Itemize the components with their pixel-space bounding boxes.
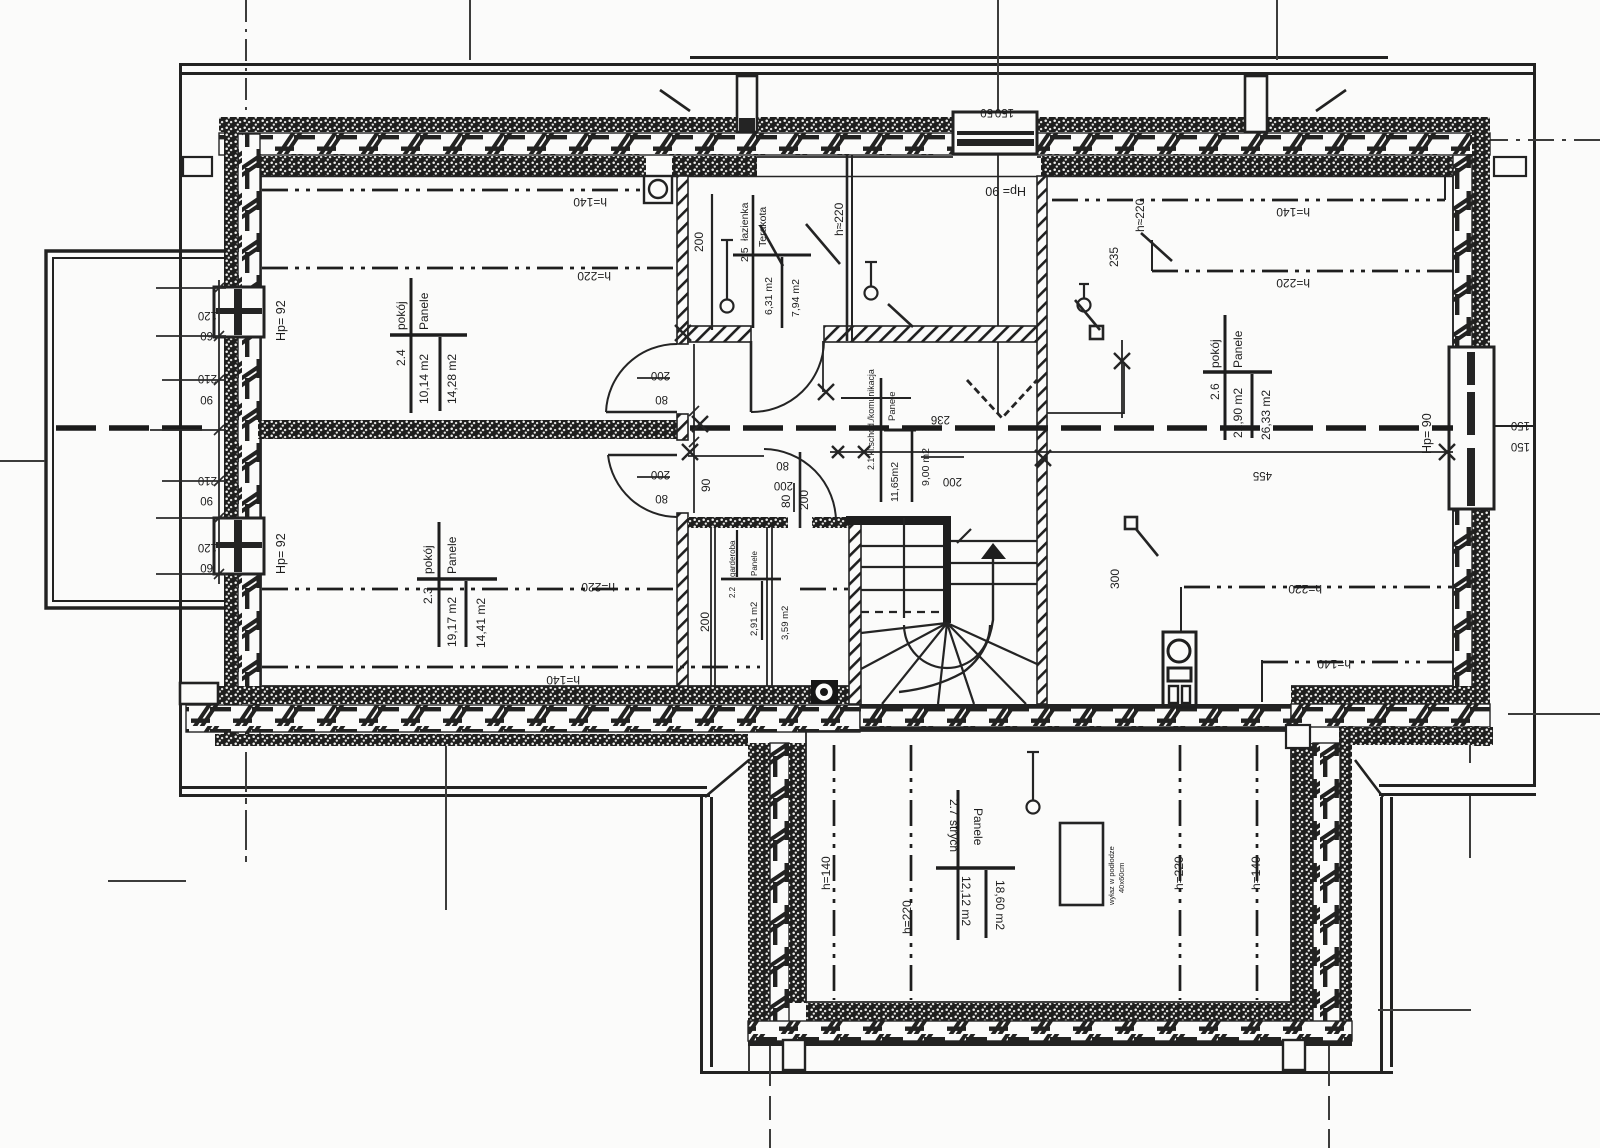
svg-text:Terakota: Terakota <box>757 207 769 247</box>
svg-text:Hp= 92: Hp= 92 <box>274 533 288 574</box>
svg-text:6,31 m2: 6,31 m2 <box>763 277 775 315</box>
svg-text:2.1 kl.schod./komunikacja: 2.1 kl.schod./komunikacja <box>866 369 876 470</box>
svg-text:200: 200 <box>651 369 670 381</box>
svg-text:h=140: h=140 <box>1276 205 1310 219</box>
svg-text:7,94 m2: 7,94 m2 <box>790 279 802 317</box>
svg-text:12,12 m2: 12,12 m2 <box>959 876 973 926</box>
svg-text:120: 120 <box>198 541 217 553</box>
svg-text:strych: strych <box>947 820 961 852</box>
svg-text:50: 50 <box>980 106 993 118</box>
svg-text:2.4: 2.4 <box>394 349 408 366</box>
svg-text:h=140: h=140 <box>573 195 607 209</box>
svg-text:pokój: pokój <box>394 301 408 330</box>
svg-text:300: 300 <box>1108 569 1122 589</box>
svg-text:h=220: h=220 <box>1288 582 1322 596</box>
svg-text:Hp= 92: Hp= 92 <box>274 300 288 341</box>
svg-text:150: 150 <box>1511 440 1530 452</box>
svg-text:60: 60 <box>200 329 213 341</box>
svg-text:80: 80 <box>655 492 668 504</box>
svg-text:pokój: pokój <box>1208 339 1222 368</box>
svg-text:Panele: Panele <box>417 292 431 330</box>
svg-text:80: 80 <box>776 459 789 471</box>
svg-text:garderoba: garderoba <box>728 540 737 577</box>
svg-text:210: 210 <box>198 372 217 384</box>
svg-text:h=140: h=140 <box>546 673 580 687</box>
svg-text:h=140: h=140 <box>1249 856 1263 890</box>
svg-text:h≈220: h≈220 <box>1133 198 1147 232</box>
svg-text:10,14 m2: 10,14 m2 <box>417 354 431 404</box>
svg-text:wyłaz w podłodze: wyłaz w podłodze <box>1107 846 1116 906</box>
svg-text:235: 235 <box>1107 247 1121 267</box>
svg-text:150: 150 <box>1511 419 1530 431</box>
svg-text:19,17 m2: 19,17 m2 <box>445 597 459 647</box>
svg-text:2.2: 2.2 <box>728 586 737 598</box>
svg-text:40x60cm: 40x60cm <box>1117 863 1126 893</box>
svg-text:80: 80 <box>779 494 793 508</box>
svg-text:2.6: 2.6 <box>1208 383 1222 400</box>
svg-text:120: 120 <box>198 309 217 321</box>
svg-text:h=220: h=220 <box>1276 276 1310 290</box>
svg-text:200: 200 <box>692 232 706 252</box>
svg-text:200: 200 <box>774 479 793 491</box>
svg-text:22,90 m2: 22,90 m2 <box>1231 388 1245 438</box>
svg-text:200: 200 <box>651 468 670 480</box>
svg-text:h=220: h=220 <box>581 580 615 594</box>
svg-text:h=220: h=220 <box>577 269 611 283</box>
svg-text:h=140: h=140 <box>819 856 833 890</box>
svg-text:200: 200 <box>797 490 811 510</box>
svg-text:210: 210 <box>198 474 217 486</box>
svg-text:Panele: Panele <box>750 551 759 576</box>
svg-text:200: 200 <box>698 612 712 632</box>
svg-text:2,91 m2: 2,91 m2 <box>749 602 760 636</box>
svg-text:h=220: h=220 <box>900 900 914 934</box>
svg-text:80: 80 <box>655 393 668 405</box>
svg-text:60: 60 <box>200 561 213 573</box>
svg-text:3,59 m2: 3,59 m2 <box>780 606 791 640</box>
svg-text:2.3: 2.3 <box>421 587 435 604</box>
svg-text:14,41 m2: 14,41 m2 <box>474 598 488 648</box>
svg-text:Hp= 90: Hp= 90 <box>1420 413 1434 454</box>
svg-text:14,28 m2: 14,28 m2 <box>445 354 459 404</box>
svg-text:Panele: Panele <box>1231 330 1245 368</box>
svg-text:2.5: 2.5 <box>739 247 751 262</box>
svg-text:200: 200 <box>943 475 962 487</box>
svg-text:Panele: Panele <box>887 391 898 421</box>
svg-text:90: 90 <box>200 494 213 506</box>
svg-text:Hp= 90: Hp= 90 <box>985 184 1026 198</box>
svg-text:90: 90 <box>200 393 213 405</box>
svg-text:236: 236 <box>931 413 950 425</box>
svg-text:2.7: 2.7 <box>947 799 961 816</box>
svg-text:90: 90 <box>699 478 713 492</box>
svg-text:Panele: Panele <box>445 536 459 574</box>
svg-text:26,33 m2: 26,33 m2 <box>1259 390 1273 440</box>
svg-text:h=220: h=220 <box>1172 856 1186 890</box>
svg-text:11,65m2: 11,65m2 <box>889 462 901 502</box>
svg-text:pokój: pokój <box>421 545 435 574</box>
svg-text:h≈220: h≈220 <box>832 202 846 236</box>
svg-text:h=140: h=140 <box>1317 657 1351 671</box>
svg-text:455: 455 <box>1253 469 1272 481</box>
svg-text:Panele: Panele <box>971 808 985 846</box>
svg-text:9,00 m2: 9,00 m2 <box>920 448 932 486</box>
svg-text:18,60 m2: 18,60 m2 <box>993 880 1007 930</box>
svg-text:150: 150 <box>995 106 1014 118</box>
svg-text:łazienka: łazienka <box>739 202 751 241</box>
